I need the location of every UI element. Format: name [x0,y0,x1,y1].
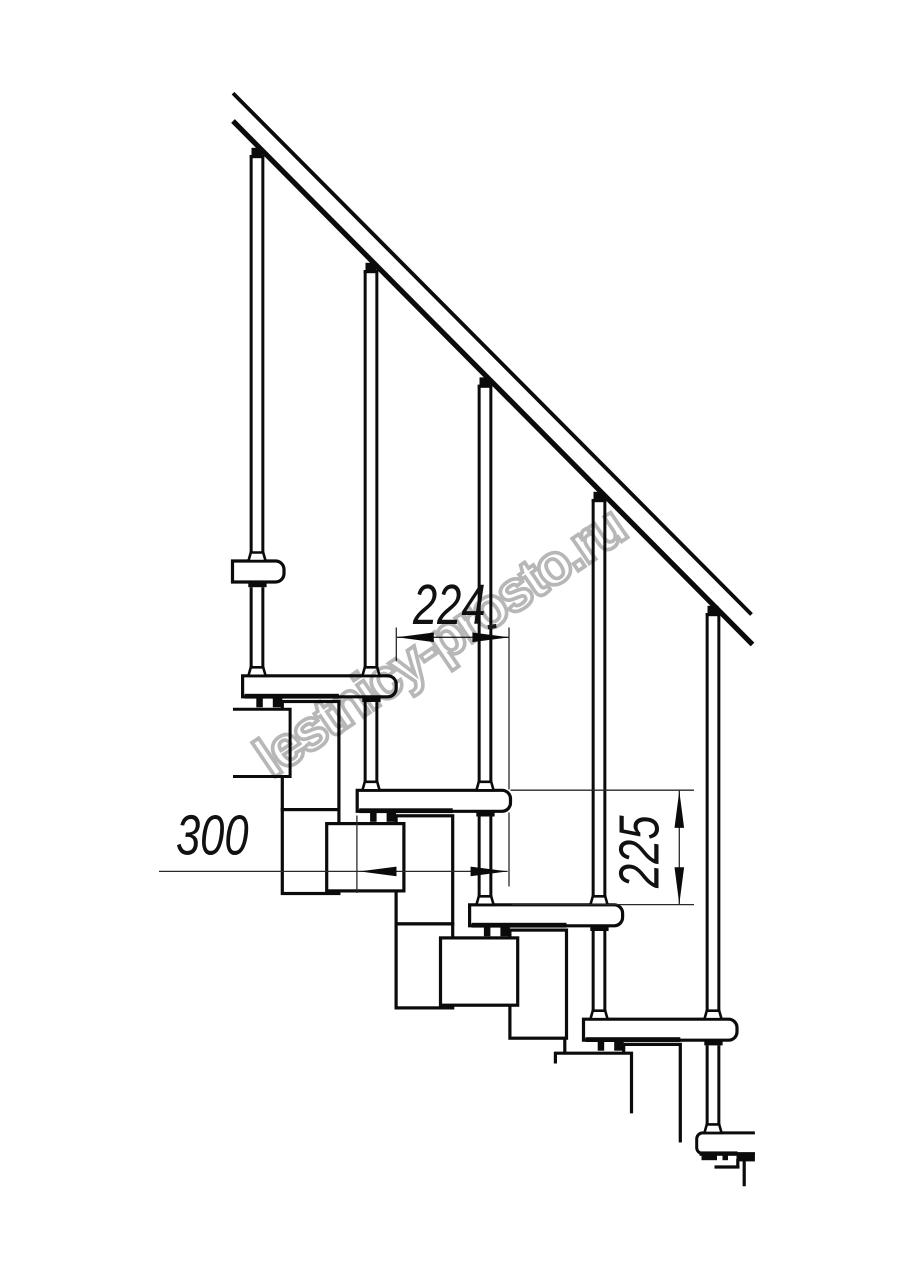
svg-text:225: 225 [607,815,671,889]
svg-text:300: 300 [176,803,249,867]
